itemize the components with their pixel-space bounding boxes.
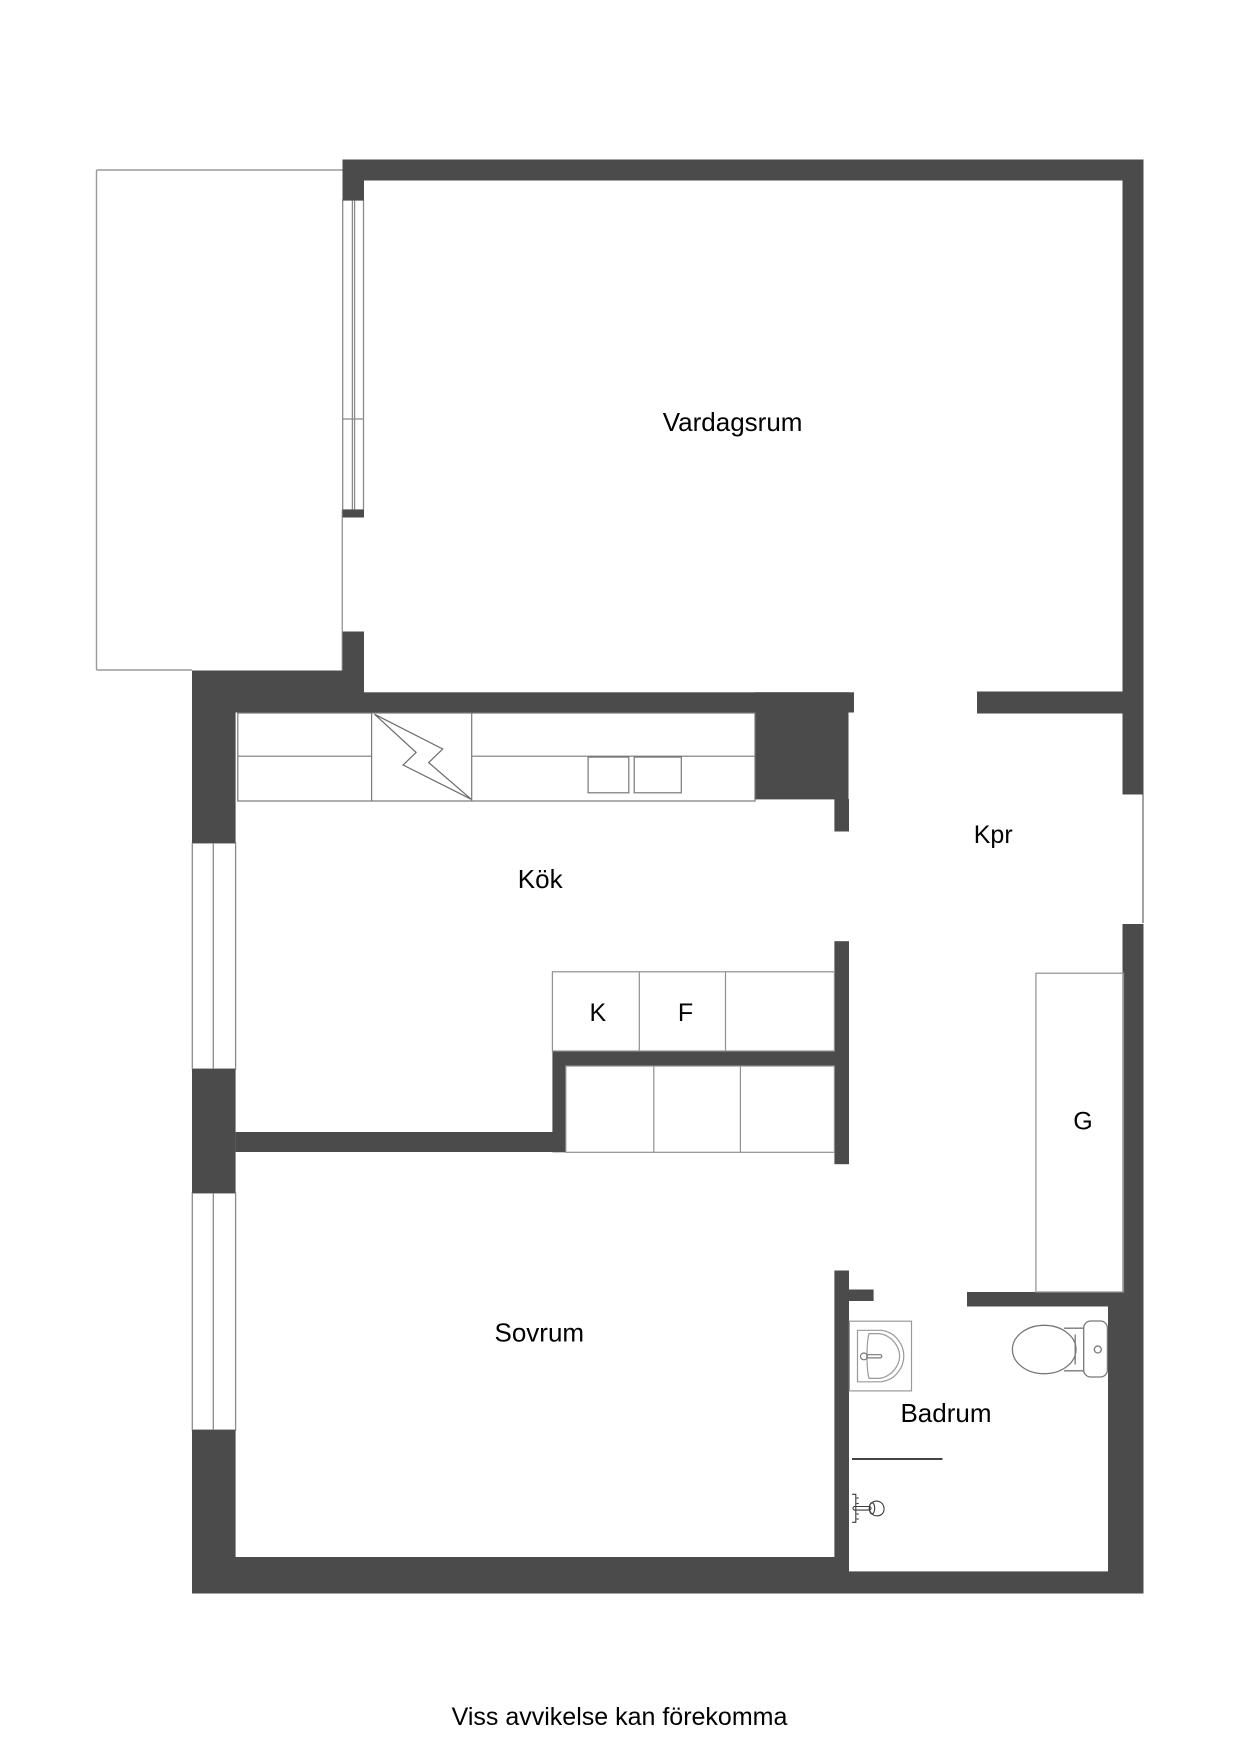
- svg-text:Viss avvikelse kan förekomma: Viss avvikelse kan förekomma: [452, 1703, 788, 1731]
- svg-text:Kök: Kök: [518, 864, 564, 894]
- svg-text:Vardagsrum: Vardagsrum: [663, 407, 803, 437]
- svg-text:F: F: [678, 999, 693, 1027]
- svg-text:Sovrum: Sovrum: [495, 1318, 585, 1348]
- svg-text:Badrum: Badrum: [900, 1398, 991, 1428]
- svg-text:G: G: [1073, 1107, 1092, 1135]
- svg-text:Kpr: Kpr: [974, 821, 1013, 849]
- svg-text:K: K: [589, 999, 606, 1027]
